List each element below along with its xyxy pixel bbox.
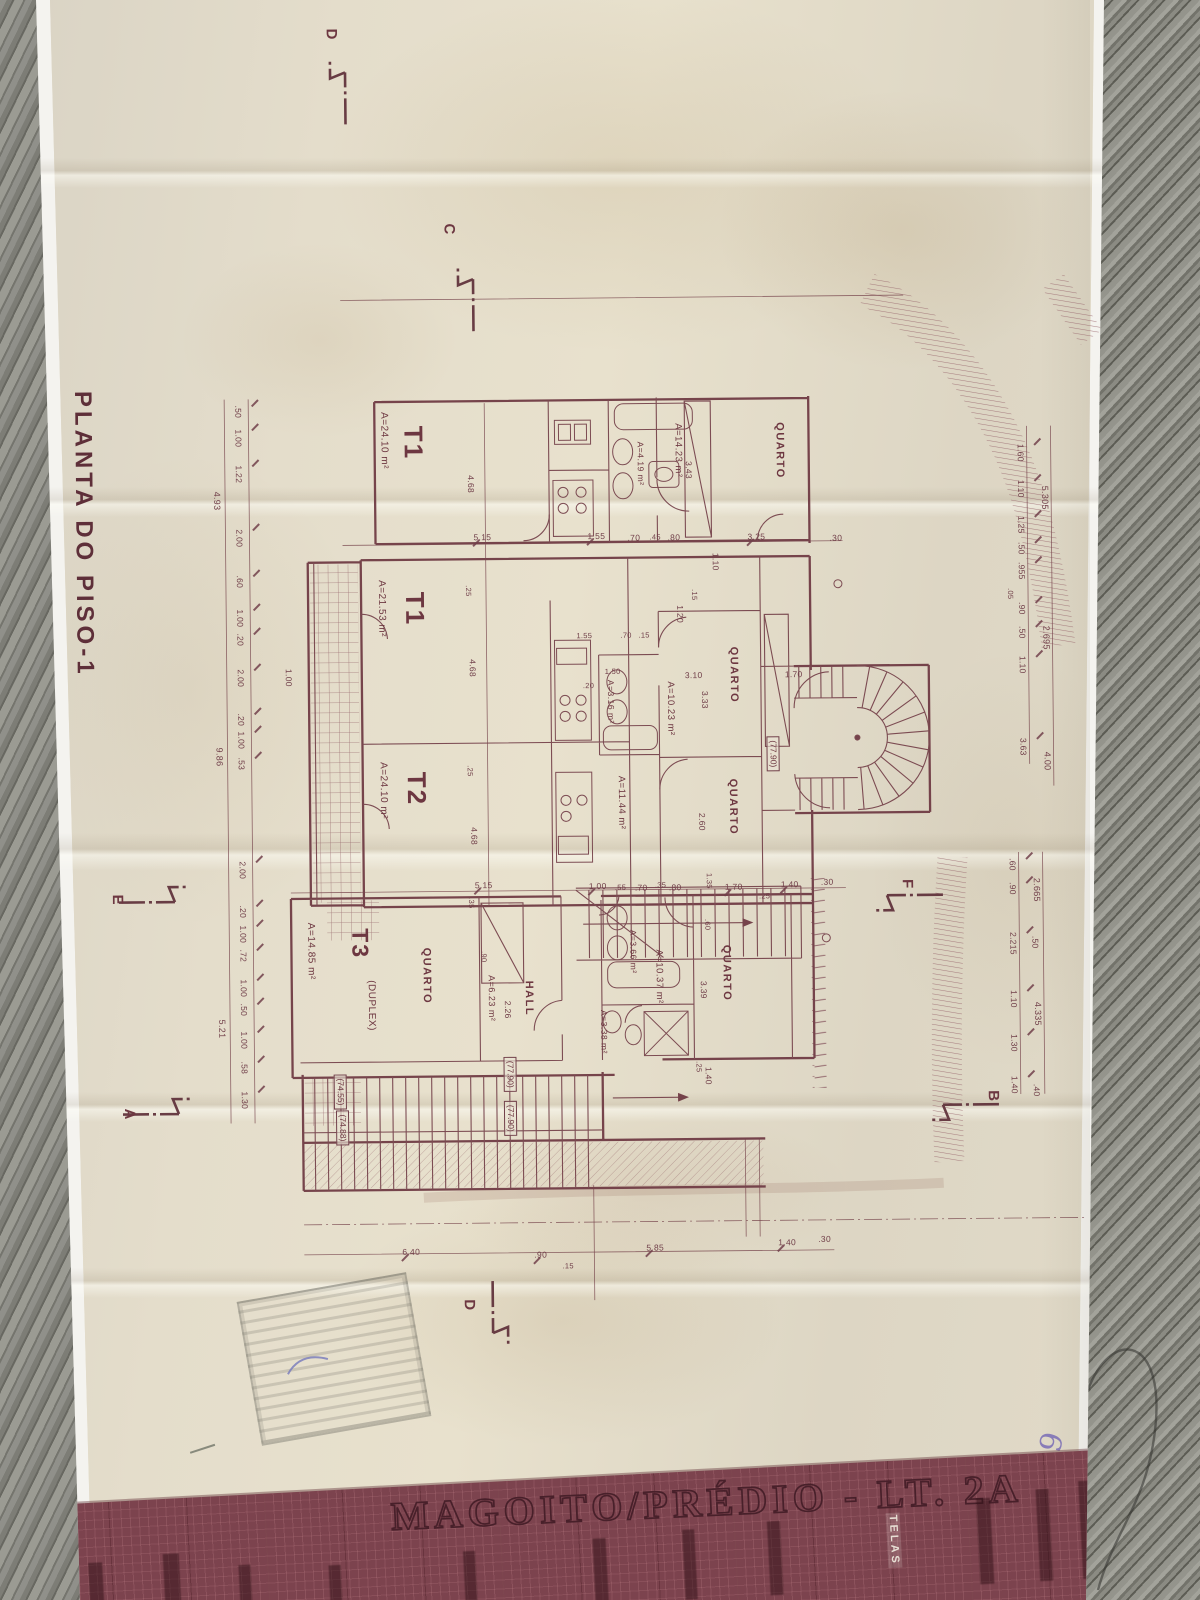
floor-plan-drawing: PLANTA DO PISO-1 DCEAFBDT1A=24.10 m²T1A=…	[0, 0, 1200, 1600]
plan-label: .58	[240, 1061, 249, 1074]
plan-label: 3.33	[700, 691, 709, 709]
plan-label: 1.50	[605, 668, 621, 676]
plan-label: T3	[348, 928, 371, 959]
plan-label: .70	[635, 884, 648, 893]
plan-label: .25	[695, 1061, 703, 1072]
plan-label: .25	[464, 585, 472, 596]
plan-label: .90	[1018, 602, 1027, 615]
plan-label: .25	[759, 892, 770, 900]
plan-label: QUARTO	[728, 647, 740, 704]
plan-label: .60	[1008, 858, 1017, 871]
plan-label: (77.90)	[504, 1101, 517, 1136]
plan-label: 5.305	[1040, 486, 1049, 510]
plan-label: 1.00	[239, 925, 248, 943]
plan-label: 1.00	[236, 609, 245, 627]
plan-label: 5.21	[217, 1020, 226, 1039]
plan-label: A=24.10 m²	[378, 762, 389, 819]
plan-label: .25	[466, 765, 474, 776]
plan-label: .35	[467, 897, 475, 908]
plan-label: 3.10	[685, 671, 703, 680]
section-marker-label: A	[122, 1108, 137, 1119]
plan-label: A=10.23 m²	[665, 681, 675, 735]
plan-label: 2.60	[698, 813, 707, 831]
plan-label: 4.68	[470, 827, 479, 845]
plan-label: 1.55	[576, 632, 592, 640]
plan-label: 2.00	[236, 669, 245, 687]
plan-label: 2.665	[1032, 878, 1041, 902]
plan-label: T1	[400, 426, 426, 461]
plan-label: .15	[562, 1262, 573, 1270]
blueprint-sheet: PLANTA DO PISO-1 DCEAFBDT1A=24.10 m²T1A=…	[0, 0, 1200, 1600]
section-marker-label: D	[324, 28, 339, 39]
plan-label: A=14.23 m²	[673, 423, 683, 477]
plan-label: 1.00	[237, 731, 246, 749]
plan-label: QUARTO	[773, 422, 785, 479]
section-marker-label: B	[986, 1090, 1001, 1101]
plan-label: 4.335	[1033, 1002, 1042, 1026]
plan-label: .80	[669, 883, 682, 892]
plan-label: .955	[1017, 562, 1026, 580]
plan-label: 1.10	[1016, 480, 1025, 498]
plan-label: .35	[655, 881, 666, 889]
title-block-column-label: TELAS	[886, 1513, 903, 1569]
plan-label: .30	[818, 1235, 831, 1244]
plan-label: .72	[239, 949, 248, 962]
plan-label: 1.10	[711, 553, 720, 571]
plan-label: 1.22	[234, 465, 243, 483]
plan-label: 2.26	[503, 1001, 512, 1019]
section-marker-label: F	[900, 879, 915, 888]
plan-label: T2	[404, 772, 430, 807]
plan-label: 4.68	[468, 659, 477, 677]
plan-label: A=3.16 m²	[606, 680, 615, 724]
plan-label: .90	[534, 1251, 547, 1260]
section-marker-label: C	[441, 223, 456, 234]
plan-label: 9.86	[214, 748, 223, 767]
plan-label: .50	[1031, 936, 1040, 949]
plan-label: 1.35	[705, 873, 713, 889]
plan-label: 1.60	[1016, 444, 1025, 462]
plan-label: A=14.85 m²	[305, 923, 316, 980]
plan-label: .30	[829, 534, 842, 543]
plan-label: .30	[821, 878, 834, 887]
plan-label: 1.30	[1010, 1034, 1019, 1052]
plan-linework	[0, 0, 1200, 1600]
plan-label: .50	[1018, 626, 1027, 639]
plan-label: .90	[480, 951, 488, 962]
plan-label: 1.10	[1009, 990, 1018, 1008]
plan-label: 1.00	[234, 429, 243, 447]
plan-label: T1	[402, 592, 428, 627]
plan-label: .50	[239, 1003, 248, 1016]
marker-doodle-on-wood	[1070, 1300, 1200, 1600]
plan-label: 2.695	[1041, 626, 1050, 650]
plan-label: .20	[583, 682, 594, 690]
plan-label: 1.70	[785, 670, 803, 679]
plan-label: 3.63	[1019, 738, 1028, 756]
plan-label: QUARTO	[720, 945, 732, 1002]
plan-label: (74.88)	[336, 1110, 349, 1145]
plan-label: 4.00	[1043, 752, 1052, 771]
plan-label: A=21.53 m²	[376, 580, 387, 637]
section-marker-label: D	[462, 1299, 477, 1310]
plan-label: .50	[234, 405, 243, 418]
plan-label: 2.00	[238, 861, 247, 879]
plan-label: A=4.19 m²	[636, 442, 645, 486]
plan-label: A=3.38 m²	[600, 1010, 609, 1054]
plan-label: QUARTO	[420, 948, 432, 1005]
plan-label: 1.10	[1018, 656, 1027, 674]
plan-label: A=10.37 m²	[654, 949, 664, 1003]
plan-label: (77.90)	[504, 1057, 517, 1092]
plan-label: .15	[638, 632, 649, 640]
plan-label: .90	[1008, 882, 1017, 895]
plan-label: .53	[237, 757, 246, 770]
plan-label: 1.00	[239, 979, 248, 997]
plan-label: 1.40	[704, 1067, 713, 1085]
plan-label: .20	[238, 905, 247, 918]
plan-label: .70	[627, 534, 640, 543]
approval-stamp	[237, 1272, 432, 1446]
plan-label: 4.93	[212, 492, 221, 511]
plan-label: .45	[649, 533, 660, 541]
plan-label: .20	[236, 633, 245, 646]
plan-label: A=6.23 m²	[487, 975, 496, 1021]
plan-label: 2.00	[235, 529, 244, 547]
plan-label: .70	[620, 632, 631, 640]
plan-label: .60	[704, 919, 712, 930]
plan-label: A=11.44 m²	[616, 776, 626, 830]
plan-label: HALL	[523, 981, 534, 1016]
plan-label: 1.40	[1010, 1076, 1019, 1094]
plan-label: 1.25	[1017, 516, 1026, 534]
plan-label: .55	[615, 884, 626, 892]
plan-label: 3.43	[684, 461, 693, 479]
plan-label: (77.90)	[767, 736, 780, 771]
plan-label: 1.20	[676, 605, 685, 623]
plan-label: .40	[1032, 1084, 1041, 1097]
plan-label: .20	[237, 713, 246, 726]
plan-label: A=3.66 m²	[629, 930, 638, 974]
plan-label: .60	[235, 575, 244, 588]
plan-label: 1.00	[284, 669, 293, 687]
plan-label: 4.68	[466, 475, 475, 493]
plan-label: (DUPLEX)	[366, 980, 376, 1031]
section-marker-label: E	[110, 895, 125, 905]
plan-label: .50	[1017, 542, 1026, 555]
plan-label: .05	[1006, 588, 1014, 599]
plan-label: 3.39	[699, 981, 708, 999]
plan-label: .80	[667, 533, 680, 542]
plan-label: 1.30	[240, 1091, 249, 1109]
plan-label: QUARTO	[727, 779, 739, 836]
plan-label: .15	[690, 589, 698, 600]
plan-label: 2.215	[1009, 932, 1018, 955]
sheet-title: PLANTA DO PISO-1	[68, 391, 99, 678]
plan-label: A=24.10 m²	[378, 412, 389, 469]
photo-of-blueprint: { "meta": { "scene": "photograph of a fo…	[0, 0, 1200, 1600]
plan-label: (74.55)	[334, 1074, 347, 1109]
plan-label: 1.00	[240, 1031, 249, 1049]
